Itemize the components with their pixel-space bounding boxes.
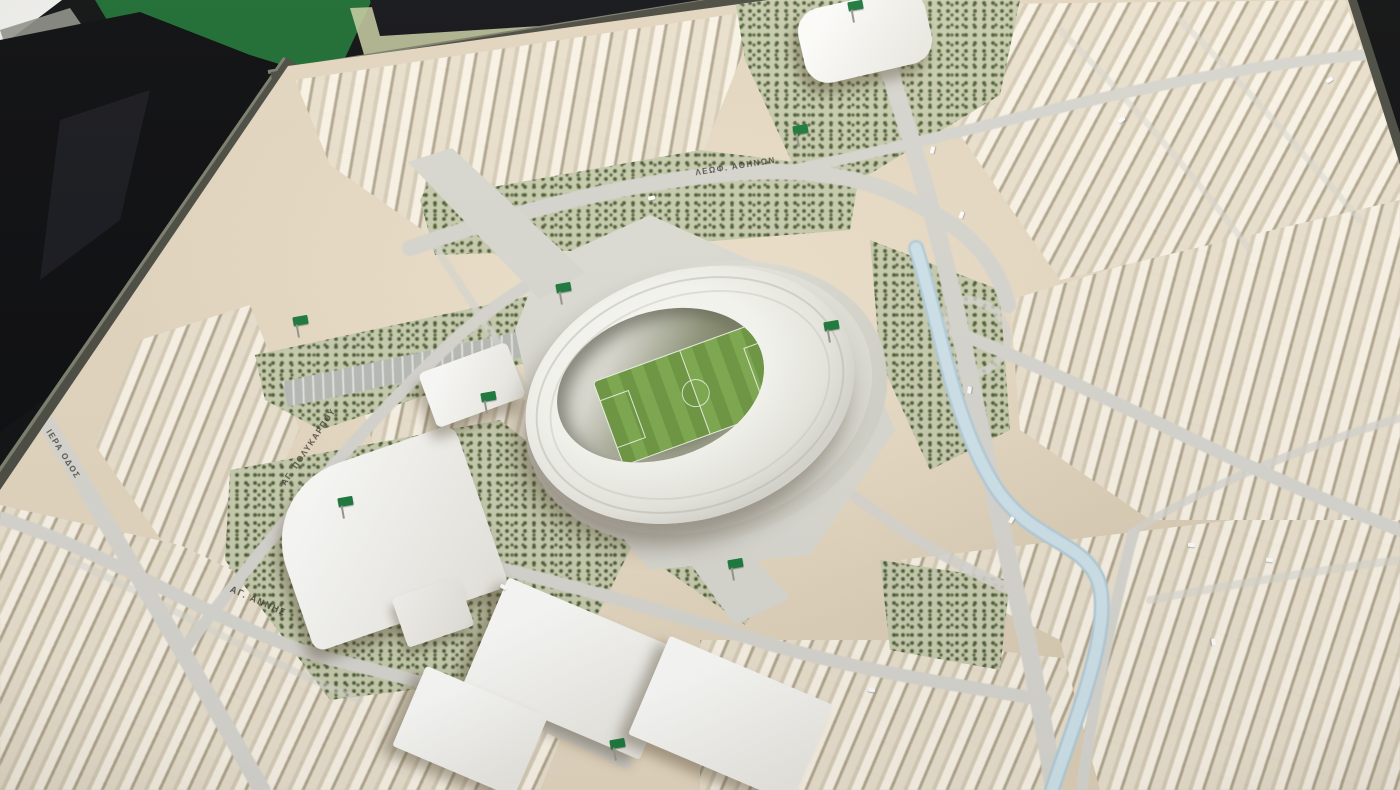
green-flag — [609, 738, 625, 749]
green-flag — [337, 496, 353, 507]
green-flag — [847, 0, 863, 11]
green-flag — [823, 320, 839, 331]
green-flag — [792, 124, 808, 135]
green-flag — [292, 315, 308, 326]
green-flag — [480, 391, 496, 402]
green-flag — [555, 282, 571, 293]
photo-of-scale-model: ΛΕΩΦ. ΑΘΗΝΩΝ ΑΓ. ΠΟΛΥΚΑΡΠΟΥ ΑΓ. ΑΝΝΗΣ ΙΕ… — [0, 0, 1400, 790]
green-flag — [727, 558, 743, 569]
